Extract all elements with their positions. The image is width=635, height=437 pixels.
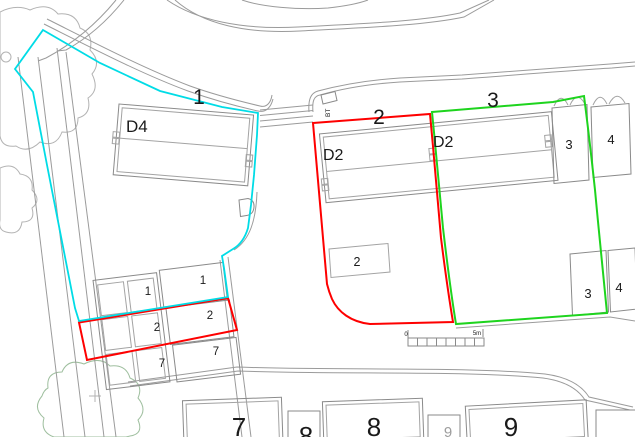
parking-space-label: 2 xyxy=(354,255,361,269)
kerb-line xyxy=(260,105,313,110)
garden-plot-label: 1 xyxy=(145,286,151,298)
plot-1-label: 1 xyxy=(193,86,205,109)
garage-top-3-label: 3 xyxy=(565,137,572,152)
garden-cell xyxy=(98,282,128,316)
building-far-right xyxy=(596,410,635,437)
tree-canopy-left xyxy=(0,166,37,233)
road-line xyxy=(167,0,489,28)
garden-plot-label: 2 xyxy=(207,310,213,322)
terrace-divider xyxy=(327,150,552,172)
scale-bar: 0 5m xyxy=(404,329,484,346)
road-line xyxy=(38,0,116,61)
house-d2-right-label: D2 xyxy=(433,134,454,151)
footpath-line xyxy=(18,57,64,437)
footpath-line xyxy=(57,48,104,437)
house-d2-left-label: D2 xyxy=(323,147,344,164)
garage-door-arcs xyxy=(593,96,625,105)
bt-label: BT xyxy=(325,109,332,117)
garage-bottom-3-label: 3 xyxy=(584,286,591,301)
building-9-label: 9 xyxy=(504,412,518,437)
kerb-curve xyxy=(234,192,257,250)
tree-canopy-bottom-left xyxy=(37,360,143,437)
building-9-outline xyxy=(465,400,588,437)
scale-bar-divisions xyxy=(418,338,475,346)
building-9 xyxy=(465,400,588,437)
building-8-label: 8 xyxy=(367,412,381,437)
tree-canopy-top-left xyxy=(0,7,97,149)
site-plan-drawing: 0 5m 1 2 3 D4 D2 D2 3 4 3 4 1 2 7 1 2 7 … xyxy=(0,0,635,437)
road-line xyxy=(47,19,272,106)
building-9-small-label: 9 xyxy=(444,424,452,437)
garden-plot-label: 1 xyxy=(200,275,206,287)
footpath-line xyxy=(66,52,116,437)
house-d4-label: D4 xyxy=(126,117,148,136)
plot-2-boundary xyxy=(313,114,453,324)
building-7-label: 7 xyxy=(232,412,246,437)
building-8-small-label: 8 xyxy=(299,421,313,437)
plot-2-label: 2 xyxy=(373,106,385,129)
kerb-line xyxy=(260,122,313,127)
plot-3-label: 3 xyxy=(487,89,499,112)
boundary-bottom-block xyxy=(130,371,630,410)
tree-trunk-marker xyxy=(1,52,11,62)
garage-top-4-label: 4 xyxy=(607,132,614,147)
plot-3-boundary xyxy=(432,96,607,324)
drive-edge xyxy=(228,257,251,437)
site-plan-svg: 0 5m 1 2 3 D4 D2 D2 3 4 3 4 1 2 7 1 2 7 … xyxy=(0,0,635,437)
kerb-line xyxy=(260,116,313,121)
building-9-inner xyxy=(469,404,585,437)
garden-plot-label: 2 xyxy=(154,322,160,334)
house-d4-divider xyxy=(120,138,248,148)
kerb-line xyxy=(260,111,313,116)
drive-edge xyxy=(220,260,242,437)
garden-cell xyxy=(106,351,136,385)
garden-plot-label: 7 xyxy=(213,346,219,358)
footpath-line xyxy=(38,57,85,437)
garden-cell xyxy=(127,278,157,312)
garden-grid xyxy=(93,262,241,391)
road-inner-arc xyxy=(242,0,368,9)
scale-5m-label: 5m xyxy=(473,331,481,337)
plot-1-boundary xyxy=(15,30,258,321)
garden-plot-label: 7 xyxy=(159,358,165,370)
bt-marker-box xyxy=(321,92,337,105)
garage-bottom-4-label: 4 xyxy=(615,280,622,295)
garden-cell xyxy=(102,316,132,350)
scale-bar-ticks xyxy=(408,329,483,338)
